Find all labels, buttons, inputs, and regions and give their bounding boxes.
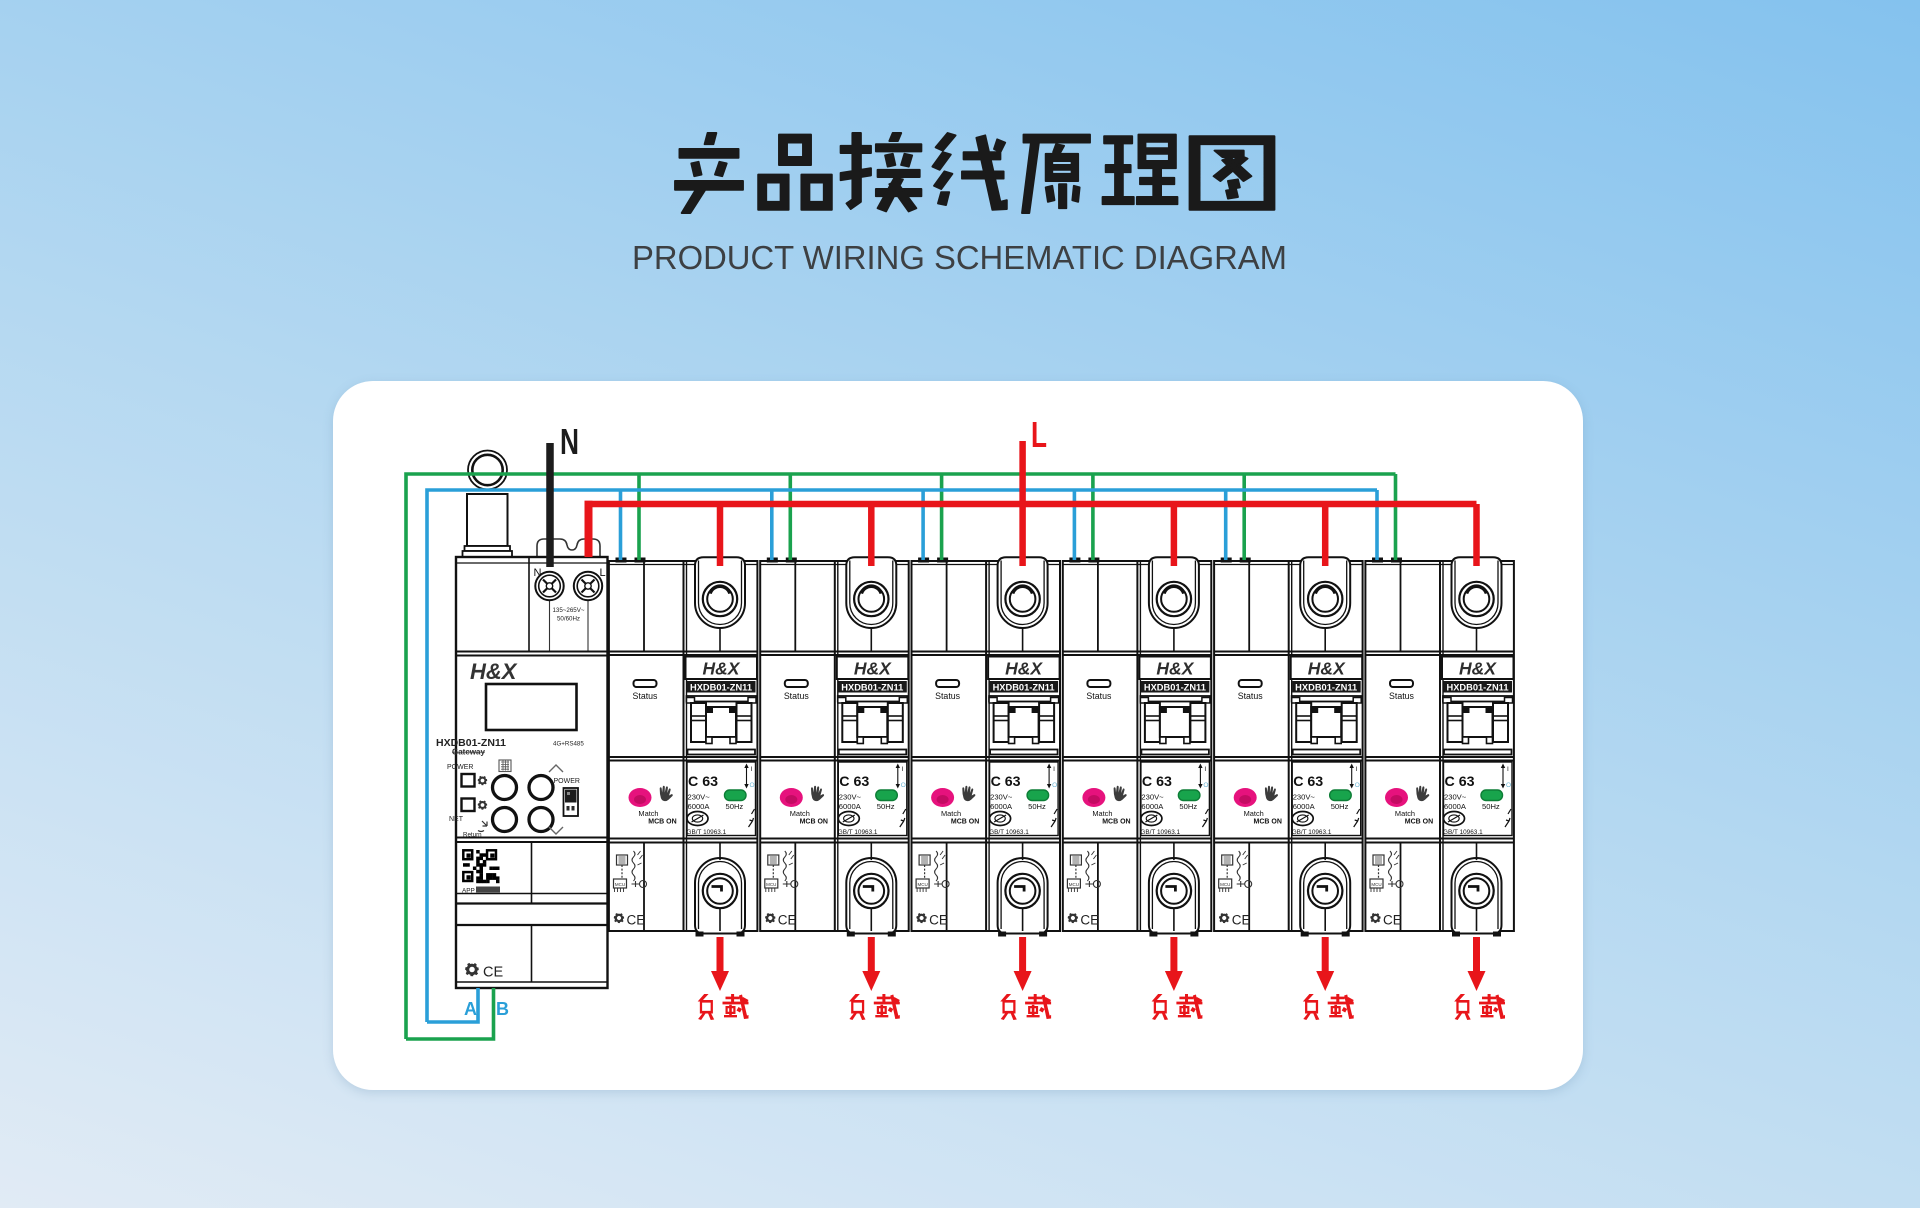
svg-text:CE: CE bbox=[483, 965, 503, 981]
svg-text:4G+RS485: 4G+RS485 bbox=[553, 741, 584, 748]
svg-text:NET: NET bbox=[449, 816, 464, 823]
svg-text:POWER: POWER bbox=[447, 764, 473, 771]
svg-text:Gateway: Gateway bbox=[452, 748, 485, 757]
svg-text:135~265V~: 135~265V~ bbox=[552, 607, 584, 614]
svg-text:B: B bbox=[496, 999, 509, 1019]
svg-text:H&X: H&X bbox=[470, 659, 518, 684]
svg-text:L: L bbox=[1031, 414, 1047, 455]
svg-text:L: L bbox=[600, 567, 606, 579]
svg-text:N: N bbox=[534, 567, 542, 579]
svg-text:50/60Hz: 50/60Hz bbox=[557, 616, 580, 623]
svg-text:PRODUCT WIRING SCHEMATIC DIAGR: PRODUCT WIRING SCHEMATIC DIAGRAM bbox=[632, 239, 1287, 276]
svg-text:A: A bbox=[464, 999, 477, 1019]
svg-text:POWER: POWER bbox=[554, 778, 580, 785]
svg-text:N: N bbox=[560, 421, 579, 462]
